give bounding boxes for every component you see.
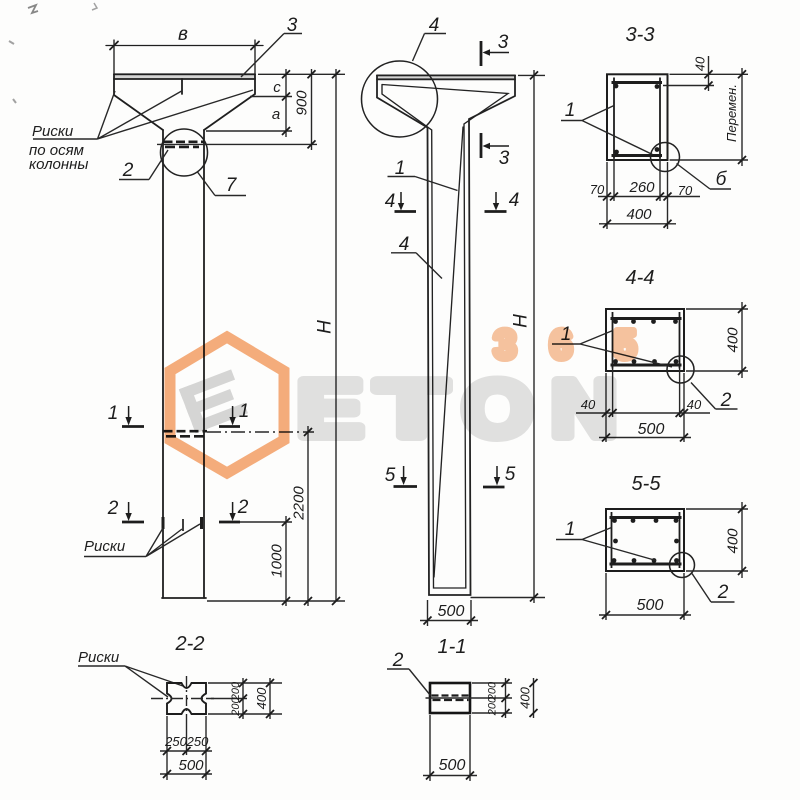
svg-text:260: 260 [628, 179, 655, 196]
svg-text:1000: 1000 [268, 544, 285, 578]
svg-text:500: 500 [637, 597, 664, 614]
svg-text:O: O [462, 364, 533, 453]
svg-text:500: 500 [438, 603, 465, 620]
svg-text:Риски: Риски [84, 538, 126, 555]
svg-text:70: 70 [590, 182, 605, 197]
svg-text:500: 500 [178, 757, 204, 774]
svg-text:1: 1 [108, 403, 119, 424]
svg-text:400: 400 [724, 528, 741, 554]
svg-text:400: 400 [517, 686, 532, 708]
svg-text:2200: 2200 [290, 486, 307, 521]
svg-text:2: 2 [122, 160, 134, 181]
svg-text:500: 500 [439, 757, 466, 774]
svg-text:1-1: 1-1 [438, 636, 467, 658]
svg-text:5: 5 [505, 464, 516, 485]
svg-text:1: 1 [565, 100, 576, 121]
svg-text:200: 200 [230, 696, 242, 716]
svg-text:Н: Н [315, 320, 336, 334]
svg-text:E: E [297, 364, 363, 453]
svg-text:Риски: Риски [32, 123, 74, 140]
svg-text:5: 5 [385, 465, 396, 486]
svg-text:2-2: 2-2 [175, 633, 205, 655]
svg-text:4-4: 4-4 [626, 267, 655, 289]
svg-text:с: с [273, 79, 281, 96]
svg-text:3: 3 [498, 32, 509, 53]
svg-text:400: 400 [626, 206, 652, 223]
svg-text:3-3: 3-3 [626, 24, 655, 46]
svg-text:500: 500 [638, 421, 665, 438]
svg-text:в: в [178, 24, 188, 45]
svg-text:70: 70 [678, 183, 693, 198]
svg-text:3: 3 [494, 323, 516, 367]
svg-text:а: а [272, 106, 280, 123]
svg-text:2: 2 [107, 498, 119, 519]
svg-text:б: б [716, 169, 728, 190]
svg-text:6: 6 [550, 323, 572, 367]
svg-text:40: 40 [692, 56, 707, 71]
svg-text:T: T [376, 364, 447, 453]
svg-text:колонны: колонны [29, 156, 88, 173]
svg-text:4: 4 [509, 190, 520, 211]
svg-text:200: 200 [486, 696, 498, 716]
svg-text:4: 4 [399, 234, 410, 255]
svg-text:Риски: Риски [78, 649, 120, 666]
svg-text:250: 250 [164, 734, 187, 749]
svg-text:400: 400 [724, 327, 741, 353]
svg-text:250: 250 [186, 734, 209, 749]
svg-text:400: 400 [254, 687, 269, 709]
svg-text:2: 2 [720, 390, 732, 411]
svg-text:5-5: 5-5 [632, 473, 662, 495]
svg-text:4: 4 [385, 191, 396, 212]
svg-text:3: 3 [499, 148, 510, 169]
svg-text:N: N [551, 364, 617, 453]
svg-text:900: 900 [293, 90, 310, 116]
svg-text:2: 2 [237, 497, 249, 518]
svg-text:1: 1 [565, 519, 576, 540]
svg-text:7: 7 [226, 175, 238, 196]
svg-text:Перемен.: Перемен. [724, 84, 739, 142]
svg-text:5: 5 [614, 323, 636, 367]
svg-text:2: 2 [392, 650, 404, 671]
svg-text:2: 2 [717, 582, 729, 603]
svg-text:40: 40 [687, 397, 702, 412]
